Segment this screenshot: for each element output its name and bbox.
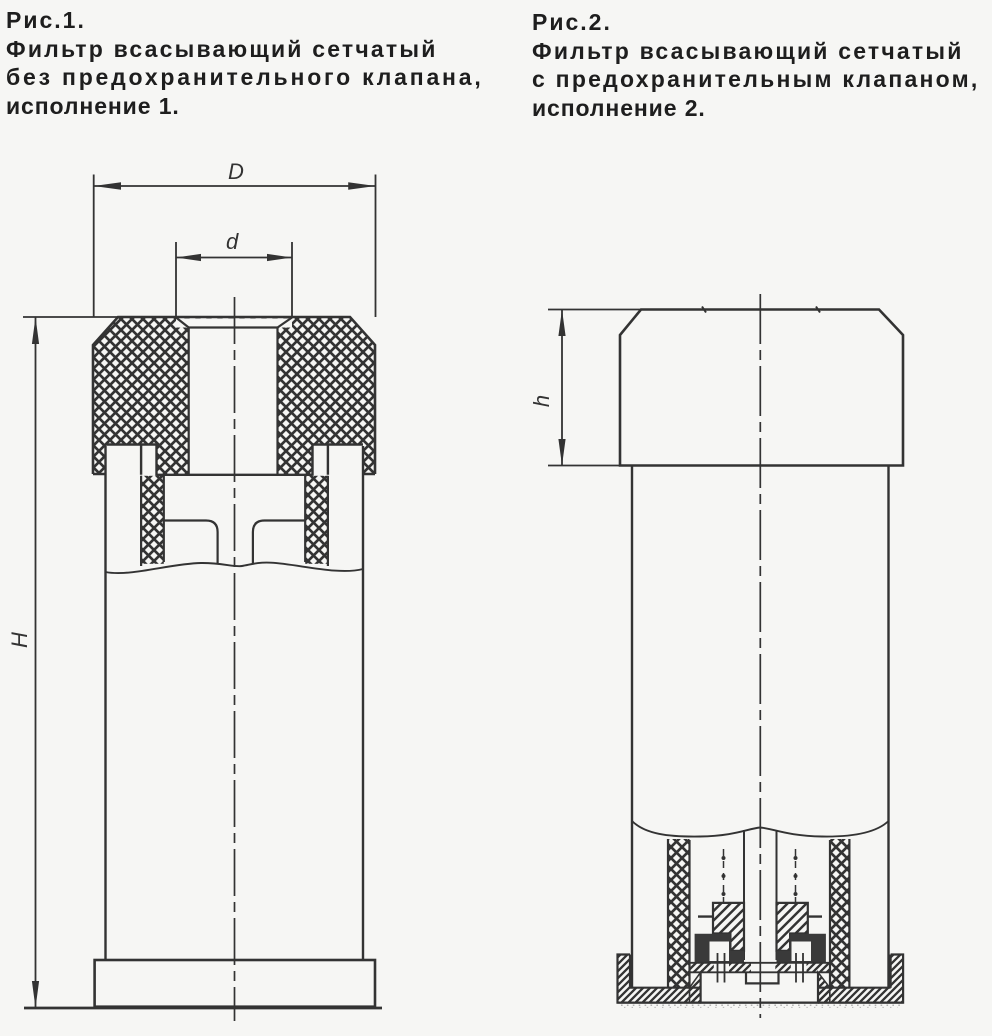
svg-text:H: H — [7, 632, 32, 648]
svg-text:D: D — [228, 159, 244, 184]
svg-text:d: d — [226, 229, 239, 254]
svg-text:h: h — [529, 395, 554, 407]
